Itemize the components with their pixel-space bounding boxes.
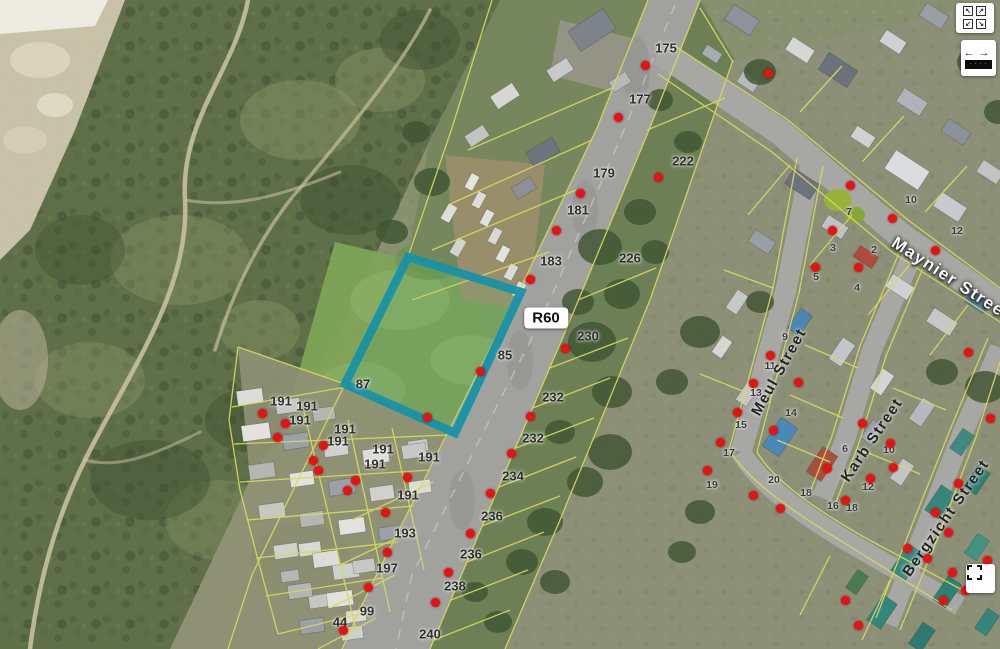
point-marker[interactable] xyxy=(351,476,360,485)
parcel-number-label: 191 xyxy=(296,399,318,414)
zoom-extent-button[interactable] xyxy=(966,564,995,593)
point-marker[interactable] xyxy=(383,548,392,557)
parcel-number-label: 222 xyxy=(672,154,694,169)
point-marker[interactable] xyxy=(552,226,561,235)
point-marker[interactable] xyxy=(764,69,773,78)
point-marker[interactable] xyxy=(309,456,318,465)
point-marker[interactable] xyxy=(614,113,623,122)
point-marker[interactable] xyxy=(339,626,348,635)
point-marker[interactable] xyxy=(986,414,995,423)
street-name-label: Maynier Street xyxy=(888,233,1000,325)
parcel-number-label: 236 xyxy=(460,547,482,562)
point-marker[interactable] xyxy=(749,379,758,388)
street-name-label: Karb Street xyxy=(838,395,907,485)
point-marker[interactable] xyxy=(766,351,775,360)
point-marker[interactable] xyxy=(273,433,282,442)
point-marker[interactable] xyxy=(319,441,328,450)
point-marker[interactable] xyxy=(444,568,453,577)
parcel-number-label: 177 xyxy=(629,92,651,107)
parcel-number-label: 191 xyxy=(397,488,419,503)
parcel-number-label: 191 xyxy=(270,394,292,409)
parcel-number-label: 181 xyxy=(567,203,589,218)
house-number-label: 5 xyxy=(813,271,819,283)
corner-arrows-icon: ↖↗↙↘ xyxy=(963,6,987,30)
parcel-number-label: 85 xyxy=(498,348,512,363)
point-marker[interactable] xyxy=(888,214,897,223)
parcel-number-label: 236 xyxy=(481,509,503,524)
parcel-number-label: 87 xyxy=(356,377,370,392)
point-marker[interactable] xyxy=(823,464,832,473)
point-marker[interactable] xyxy=(423,413,432,422)
point-marker[interactable] xyxy=(931,508,940,517)
point-marker[interactable] xyxy=(828,226,837,235)
point-marker[interactable] xyxy=(846,181,855,190)
house-number-label: 14 xyxy=(785,407,797,419)
house-number-label: 4 xyxy=(854,282,860,294)
point-marker[interactable] xyxy=(258,409,267,418)
house-number-label: 18 xyxy=(800,487,812,499)
parcel-number-label: 240 xyxy=(419,627,441,642)
point-marker[interactable] xyxy=(858,419,867,428)
parcel-number-label: 191 xyxy=(418,450,440,465)
measure-scale-button[interactable]: ←→ · · · · xyxy=(961,40,996,76)
point-marker[interactable] xyxy=(931,246,940,255)
parcel-number-label: 238 xyxy=(444,579,466,594)
point-marker[interactable] xyxy=(716,438,725,447)
point-marker[interactable] xyxy=(703,466,712,475)
parcel-number-label: 234 xyxy=(502,469,524,484)
parcel-number-label: 232 xyxy=(522,431,544,446)
street-name-label: Bergzicht Street xyxy=(899,456,993,580)
point-marker[interactable] xyxy=(923,554,932,563)
parcel-number-label: 193 xyxy=(394,526,416,541)
point-marker[interactable] xyxy=(431,598,440,607)
point-marker[interactable] xyxy=(854,263,863,272)
house-number-label: 6 xyxy=(842,443,848,455)
map-viewport[interactable]: R60 175177179181183858719119119119119119… xyxy=(0,0,1000,649)
corner-brackets-icon xyxy=(966,564,983,581)
pan-directions-button[interactable]: ↖↗↙↘ xyxy=(956,3,994,33)
parcel-number-label: 191 xyxy=(327,434,349,449)
point-marker[interactable] xyxy=(654,173,663,182)
point-marker[interactable] xyxy=(526,275,535,284)
parcel-number-label: 226 xyxy=(619,251,641,266)
point-marker[interactable] xyxy=(466,529,475,538)
label-overlay: R60 175177179181183858719119119119119119… xyxy=(0,0,1000,649)
parcel-number-label: 230 xyxy=(577,329,599,344)
point-marker[interactable] xyxy=(486,489,495,498)
point-marker[interactable] xyxy=(381,508,390,517)
house-number-label: 3 xyxy=(830,242,836,254)
parcel-number-label: 99 xyxy=(360,604,374,619)
point-marker[interactable] xyxy=(769,426,778,435)
point-marker[interactable] xyxy=(776,504,785,513)
point-marker[interactable] xyxy=(476,367,485,376)
house-number-label: 19 xyxy=(706,479,718,491)
point-marker[interactable] xyxy=(641,61,650,70)
parcel-number-label: 191 xyxy=(372,442,394,457)
point-marker[interactable] xyxy=(866,474,875,483)
parcel-number-label: 183 xyxy=(540,254,562,269)
point-marker[interactable] xyxy=(561,344,570,353)
point-marker[interactable] xyxy=(507,449,516,458)
parcel-number-label: 175 xyxy=(655,41,677,56)
house-number-label: 15 xyxy=(735,419,747,431)
point-marker[interactable] xyxy=(903,544,912,553)
point-marker[interactable] xyxy=(343,486,352,495)
point-marker[interactable] xyxy=(811,263,820,272)
point-marker[interactable] xyxy=(749,491,758,500)
point-marker[interactable] xyxy=(576,189,585,198)
point-marker[interactable] xyxy=(841,596,850,605)
point-marker[interactable] xyxy=(944,528,953,537)
parcel-number-label: 232 xyxy=(542,390,564,405)
left-right-arrows-icon: ←→ xyxy=(964,48,994,58)
street-name-label: Meul Street xyxy=(748,325,810,418)
point-marker[interactable] xyxy=(526,412,535,421)
point-marker[interactable] xyxy=(886,439,895,448)
arrow-glyph: ↗ xyxy=(976,6,986,16)
parcel-number-label: 191 xyxy=(364,457,386,472)
point-marker[interactable] xyxy=(954,479,963,488)
house-number-label: 7 xyxy=(846,206,852,218)
house-number-label: 12 xyxy=(951,225,963,237)
point-marker[interactable] xyxy=(939,596,948,605)
parcel-number-label: 191 xyxy=(289,413,311,428)
parcel-number-label: 179 xyxy=(593,166,615,181)
point-marker[interactable] xyxy=(733,408,742,417)
arrow-glyph: ↖ xyxy=(963,6,973,16)
arrow-glyph: ↙ xyxy=(963,19,973,29)
point-marker[interactable] xyxy=(964,348,973,357)
point-marker[interactable] xyxy=(948,568,957,577)
parcel-number-label: 197 xyxy=(376,561,398,576)
point-marker[interactable] xyxy=(403,473,412,482)
house-number-label: 17 xyxy=(723,447,735,459)
house-number-label: 16 xyxy=(827,500,839,512)
scale-bar-icon: · · · · xyxy=(965,60,992,69)
point-marker[interactable] xyxy=(854,621,863,630)
point-marker[interactable] xyxy=(364,583,373,592)
house-number-label: 2 xyxy=(871,244,877,256)
house-number-label: 20 xyxy=(768,474,780,486)
road-shield-r60: R60 xyxy=(524,308,568,329)
house-number-label: 10 xyxy=(905,194,917,206)
point-marker[interactable] xyxy=(281,419,290,428)
house-number-label: 12 xyxy=(862,481,874,493)
point-marker[interactable] xyxy=(889,463,898,472)
point-marker[interactable] xyxy=(841,496,850,505)
arrow-glyph: ↘ xyxy=(976,19,986,29)
point-marker[interactable] xyxy=(794,378,803,387)
point-marker[interactable] xyxy=(314,466,323,475)
